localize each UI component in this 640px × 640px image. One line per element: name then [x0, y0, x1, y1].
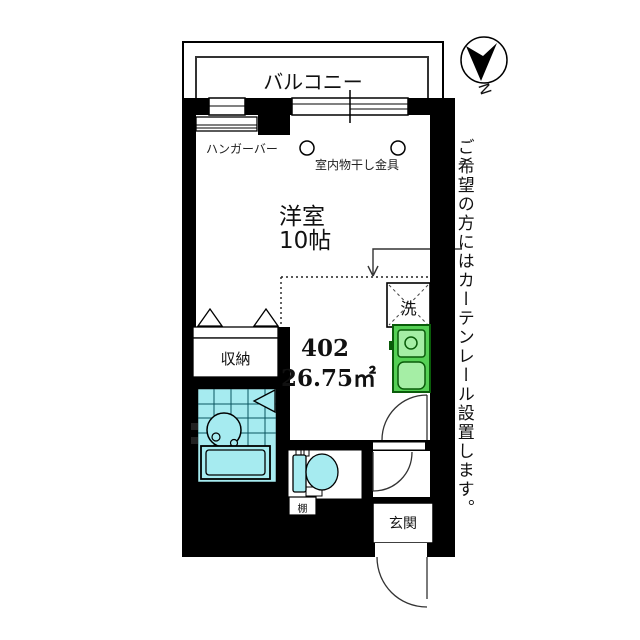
unit-area-label: 26.75㎡ — [281, 359, 376, 393]
shelf-label: 棚 — [289, 500, 316, 515]
compass-icon — [461, 37, 507, 83]
drying-hook-label: 室内物干し金具 — [315, 156, 399, 173]
bathroom — [191, 388, 277, 483]
hanger-bar-label: ハンガーバー — [206, 140, 278, 157]
balcony-label: バルコニー — [233, 66, 393, 95]
mini-kitchen — [389, 325, 430, 392]
front-door-swing — [377, 557, 427, 607]
curtain-note: ご希望の方にはカーテンレール設置します。 — [454, 138, 473, 498]
hall-door-swing — [373, 452, 412, 491]
room-door-swing — [382, 395, 427, 440]
entrance-opening — [375, 543, 427, 557]
closet-label: 収納 — [193, 348, 278, 369]
room-size-label: 10帖 — [279, 221, 331, 255]
floor-plan: バルコニー ハンガーバー 室内物干し金具 洋室 10帖 402 26.75㎡ 洗… — [0, 0, 640, 640]
toilet — [288, 450, 362, 499]
drying-hook-icons — [300, 141, 405, 155]
entrance-label: 玄関 — [373, 513, 433, 533]
bath-faucet — [191, 423, 198, 430]
unit-number-label: 402 — [301, 335, 349, 362]
threshold — [373, 442, 425, 450]
hanger-bar-symbol — [196, 117, 257, 131]
washer-label: 洗 — [387, 295, 430, 319]
floor-plan-drawing — [0, 0, 640, 640]
